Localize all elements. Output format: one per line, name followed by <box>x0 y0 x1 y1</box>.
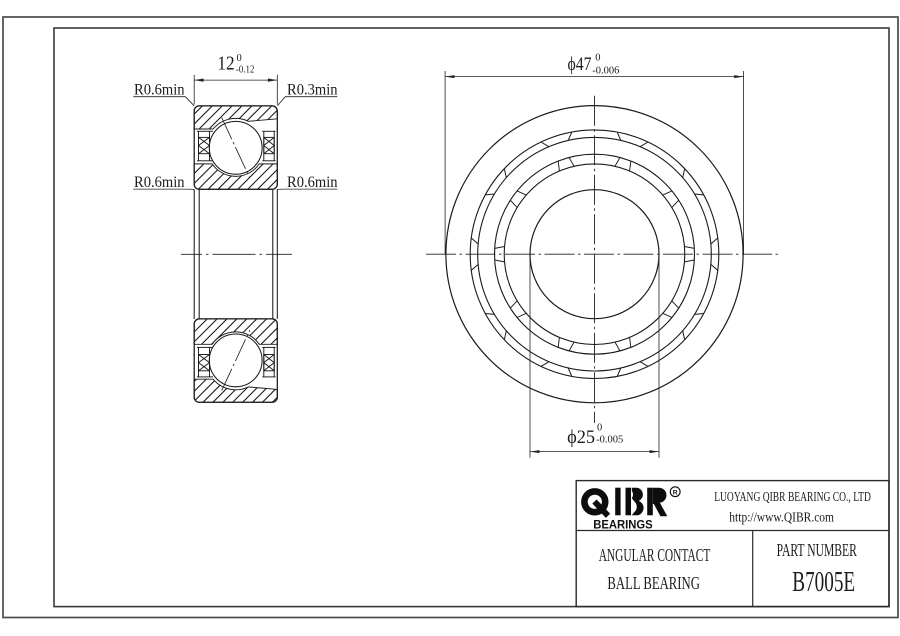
svg-text:ϕ47: ϕ47 <box>568 54 592 75</box>
svg-text:R0.6min: R0.6min <box>134 82 185 99</box>
svg-text:0: 0 <box>237 53 242 64</box>
svg-text:0: 0 <box>595 53 600 64</box>
svg-text:R0.6min: R0.6min <box>287 174 338 191</box>
svg-text:PART NUMBER: PART NUMBER <box>777 540 858 560</box>
svg-text:0: 0 <box>597 423 602 434</box>
svg-text:BALL BEARING: BALL BEARING <box>607 573 700 593</box>
svg-text:12: 12 <box>217 53 234 75</box>
svg-text:-0.12: -0.12 <box>236 64 255 75</box>
svg-text:-0.005: -0.005 <box>596 435 623 446</box>
svg-text:R0.3min: R0.3min <box>287 82 338 99</box>
svg-text:R: R <box>673 490 678 497</box>
svg-text:B7005E: B7005E <box>792 566 855 598</box>
svg-text:-0.006: -0.006 <box>592 66 619 77</box>
svg-text:ϕ25: ϕ25 <box>567 427 595 448</box>
svg-text:ANGULAR CONTACT: ANGULAR CONTACT <box>599 545 711 565</box>
svg-text:http://www.QIBR.com: http://www.QIBR.com <box>729 511 834 526</box>
svg-text:R0.6min: R0.6min <box>134 174 185 191</box>
svg-text:LUOYANG QIBR BEARING CO., LTD: LUOYANG QIBR BEARING CO., LTD <box>714 490 871 505</box>
svg-text:BEARINGS: BEARINGS <box>593 520 653 532</box>
